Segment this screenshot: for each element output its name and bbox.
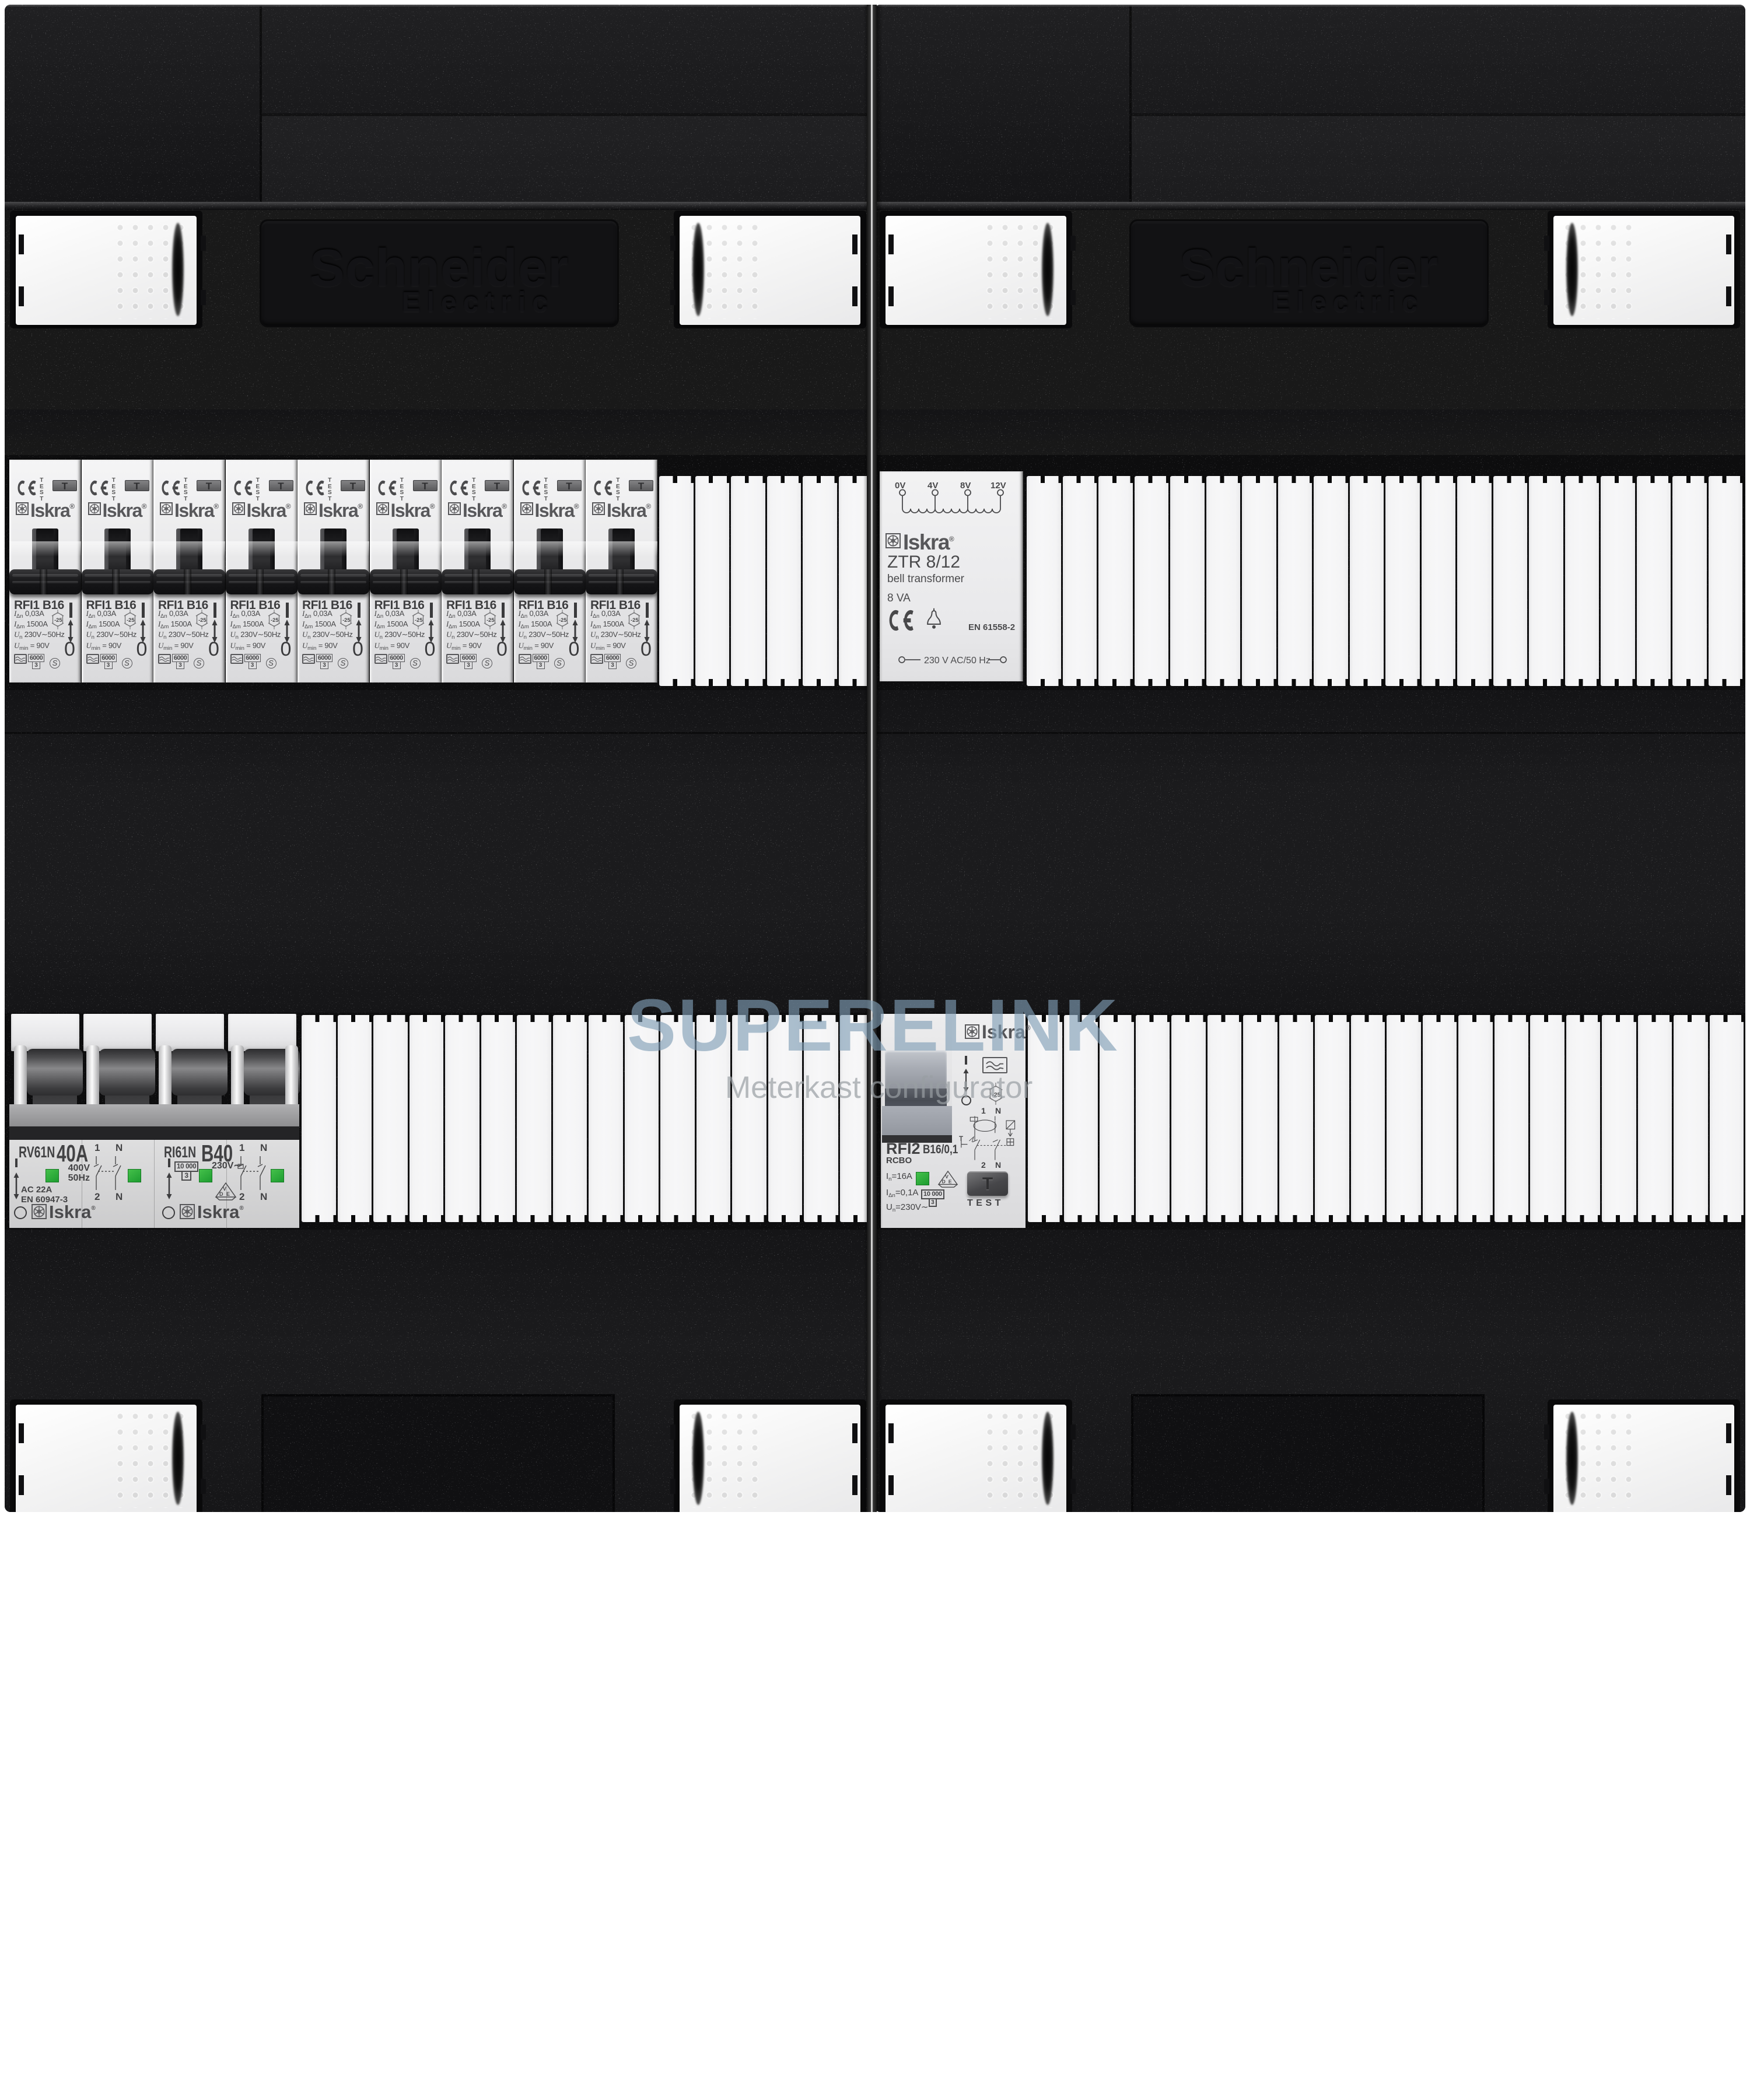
svg-text:-25: -25 (271, 617, 278, 623)
svg-text:-25: -25 (198, 617, 206, 623)
svg-text:-25: -25 (415, 617, 422, 623)
svg-text:-25: -25 (559, 617, 566, 623)
svg-text:T: T (959, 1136, 963, 1143)
svg-text:-25: -25 (342, 617, 350, 623)
svg-text:D: D (942, 1179, 946, 1185)
svg-text:E: E (226, 1191, 230, 1197)
svg-text:230 V AC/50 Hz: 230 V AC/50 Hz (924, 656, 991, 666)
svg-text:D: D (219, 1191, 223, 1197)
svg-text:-25: -25 (631, 617, 638, 623)
svg-text:-25: -25 (54, 617, 62, 623)
svg-text:-25: -25 (127, 617, 134, 623)
svg-text:E: E (949, 1179, 952, 1185)
svg-text:-25: -25 (487, 617, 494, 623)
